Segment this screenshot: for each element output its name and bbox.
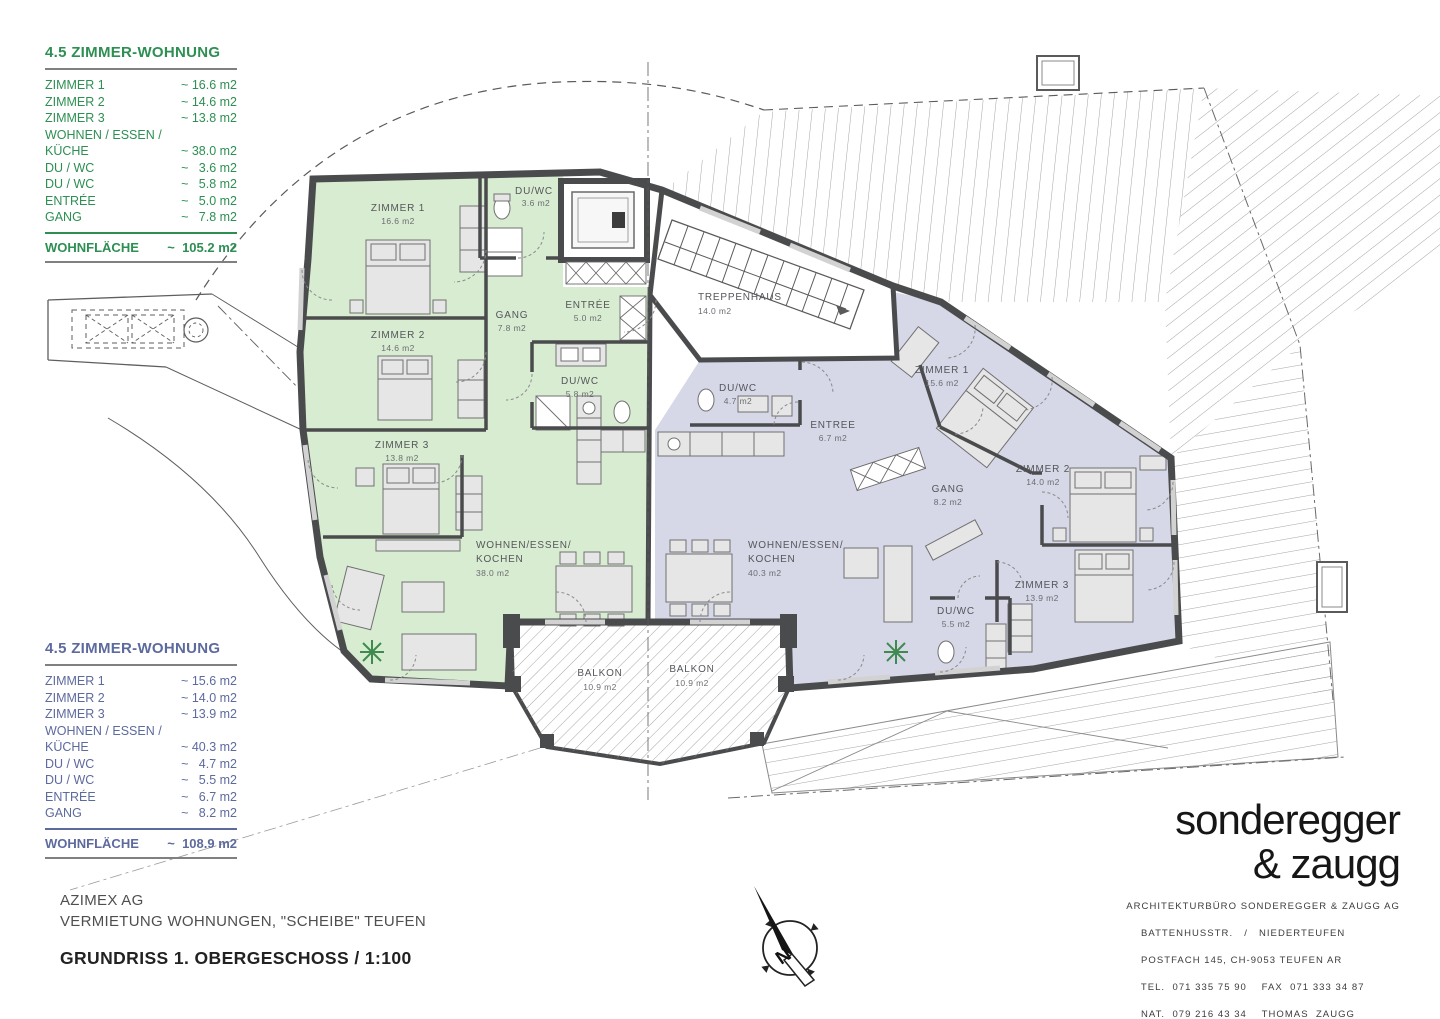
svg-text:7.8 m2: 7.8 m2 [498,323,526,333]
legend-row: DU / WC~ 5.8 m2 [45,176,237,193]
room-label: ZIMMER 3 [375,440,429,451]
svg-text:10.9 m2: 10.9 m2 [583,682,617,692]
legend-row: DU / WC~ 4.7 m2 [45,756,237,773]
svg-text:5.8 m2: 5.8 m2 [566,389,594,399]
legend-row: GANG~ 8.2 m2 [45,805,237,822]
elevator [561,181,647,260]
client-name: AZIMEX AG [60,890,426,911]
svg-text:10.9 m2: 10.9 m2 [675,678,709,688]
room-label: WOHNEN/ESSEN/ [748,540,843,551]
svg-text:13.8 m2: 13.8 m2 [385,453,419,463]
room-label: ENTRÉE [565,298,610,311]
svg-text:38.0 m2: 38.0 m2 [476,568,510,578]
room-label: ENTREE [810,420,855,431]
legend-blue-title: 4.5 ZIMMER-WOHNUNG [45,640,237,657]
svg-text:5.5 m2: 5.5 m2 [942,619,970,629]
firm-logo-line2: & zaugg [1070,842,1400,886]
legend-row: ZIMMER 3~ 13.9 m2 [45,706,237,723]
svg-text:16.6 m2: 16.6 m2 [381,216,415,226]
room-label: DU/WC [515,186,553,197]
legend-row: ZIMMER 1~ 15.6 m2 [45,673,237,690]
legend-row: KÜCHE~ 38.0 m2 [45,143,237,160]
svg-text:3.6 m2: 3.6 m2 [522,198,550,208]
svg-text:4.7 m2: 4.7 m2 [724,396,752,406]
room-label: ZIMMER 2 [371,330,425,341]
room-label: GANG [932,484,965,495]
legend-total: WOHNFLÄCHE~ 105.2 m2 [45,232,237,255]
svg-text:14.6 m2: 14.6 m2 [381,343,415,353]
legend-row: ENTRÉE~ 6.7 m2 [45,789,237,806]
svg-text:8.2 m2: 8.2 m2 [934,497,962,507]
floorplan-sheet: ZIMMER 1 16.6 m2 ZIMMER 2 14.6 m2 ZIMMER… [0,0,1440,1019]
svg-text:14.0 m2: 14.0 m2 [1026,477,1060,487]
room-label: ZIMMER 3 [1015,580,1069,591]
room-label: BALKON [577,668,622,679]
divider [45,68,237,70]
legend-row: ZIMMER 2~ 14.6 m2 [45,94,237,111]
north-compass-icon: N [754,886,819,986]
legend-row: WOHNEN / ESSEN / [45,723,237,740]
drawing-title: GRUNDRISS 1. OBERGESCHOSS / 1:100 [60,948,426,969]
room-label: DU/WC [719,383,757,394]
divider [45,664,237,666]
firm-logo-line1: sonderegger [1070,798,1400,842]
chimney [1037,56,1079,90]
svg-text:13.9 m2: 13.9 m2 [1025,593,1059,603]
legend-row: ZIMMER 3~ 13.8 m2 [45,110,237,127]
room-label: ZIMMER 2 [1016,464,1070,475]
legend-row: KÜCHE~ 40.3 m2 [45,739,237,756]
legend-green-title: 4.5 ZIMMER-WOHNUNG [45,44,237,61]
room-label: ZIMMER 1 [915,365,969,376]
room-label: ZIMMER 1 [371,203,425,214]
svg-text:5.0 m2: 5.0 m2 [574,313,602,323]
divider [45,261,237,263]
room-label: DU/WC [561,376,599,387]
balcony-bay [503,614,797,764]
legend-row: GANG~ 7.8 m2 [45,209,237,226]
legend-row: ZIMMER 2~ 14.0 m2 [45,690,237,707]
svg-text:6.7 m2: 6.7 m2 [819,433,847,443]
svg-text:KOCHEN: KOCHEN [748,554,796,565]
legend-row: WOHNEN / ESSEN / [45,127,237,144]
legend-row: ENTRÉE~ 5.0 m2 [45,193,237,210]
legend-apartment-blue: 4.5 ZIMMER-WOHNUNG ZIMMER 1~ 15.6 m2 ZIM… [45,640,237,859]
svg-text:15.6 m2: 15.6 m2 [925,378,959,388]
room-label: TREPPENHAUS [698,292,782,303]
roof-dormer [1317,562,1347,612]
svg-text:40.3 m2: 40.3 m2 [748,568,782,578]
project-title-block: AZIMEX AG VERMIETUNG WOHNUNGEN, "SCHEIBE… [60,890,426,969]
legend-row: ZIMMER 1~ 16.6 m2 [45,77,237,94]
firm-address: ARCHITEKTURBÜRO SONDEREGGER & ZAUGG AG B… [1126,900,1400,1019]
legend-row: DU / WC~ 5.5 m2 [45,772,237,789]
room-label: WOHNEN/ESSEN/ [476,540,571,551]
svg-text:14.0 m2: 14.0 m2 [698,306,732,316]
room-label: BALKON [669,664,714,675]
architect-stamp-block: sonderegger & zaugg ARCHITEKTURBÜRO SOND… [1070,798,1400,1019]
room-label: GANG [496,310,529,321]
legend-apartment-green: 4.5 ZIMMER-WOHNUNG ZIMMER 1~ 16.6 m2 ZIM… [45,44,237,263]
legend-total: WOHNFLÄCHE~ 108.9 m2 [45,828,237,851]
legend-row: DU / WC~ 3.6 m2 [45,160,237,177]
divider [45,857,237,859]
room-label: DU/WC [937,606,975,617]
svg-text:KOCHEN: KOCHEN [476,554,524,565]
project-subtitle: VERMIETUNG WOHNUNGEN, "SCHEIBE" TEUFEN [60,911,426,932]
